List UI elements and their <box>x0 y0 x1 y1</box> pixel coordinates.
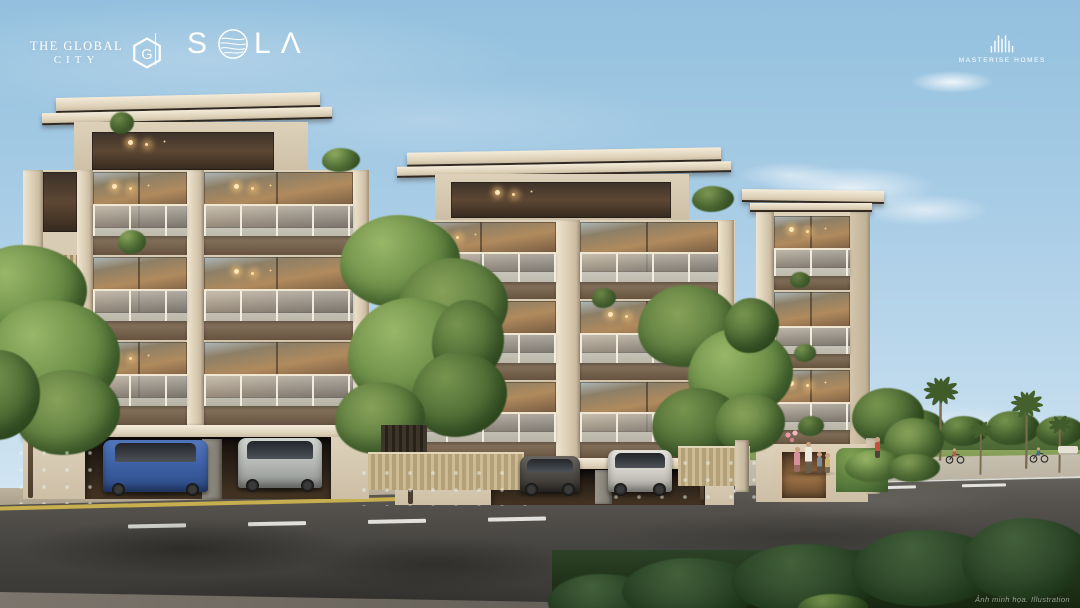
roof-slab <box>742 189 884 204</box>
balcony-glass-rail <box>580 252 718 282</box>
sola-logo: S L Λ <box>187 27 306 61</box>
park-bench <box>1058 446 1078 453</box>
header-branding: THE GLOBAL CITY G S L Λ <box>0 0 1080 95</box>
sola-letter-l: L <box>254 27 276 61</box>
logo-divider <box>155 33 156 65</box>
side-window <box>43 172 77 232</box>
pedestrian-child <box>817 457 822 473</box>
balcony-glass-rail <box>93 204 187 236</box>
cyclist <box>944 448 966 464</box>
hedge-row <box>358 468 530 506</box>
car-windshield <box>247 441 313 459</box>
illustration-watermark: Ảnh minh họa. Illustration <box>975 595 1070 604</box>
pedestrian-child <box>825 458 830 473</box>
car-windshield <box>115 443 197 462</box>
spandrel-band <box>774 276 850 290</box>
balloons <box>784 430 800 446</box>
tree-shadow-on-road <box>20 518 350 578</box>
global-city-line2: CITY <box>30 54 123 66</box>
global-city-emblem-icon: G <box>130 36 164 70</box>
sola-wave-o-icon <box>217 28 249 60</box>
global-city-wordmark: THE GLOBAL CITY <box>30 40 123 66</box>
attic-window <box>92 132 274 170</box>
facade-column <box>556 220 580 460</box>
cyclist <box>1028 447 1050 463</box>
spandrel-band <box>204 236 353 255</box>
car-windshield <box>527 459 574 472</box>
blue-suv-car <box>103 440 208 492</box>
facade-column <box>187 170 204 425</box>
emblem-letter: G <box>142 47 153 63</box>
masterise-homes-logo: MASTERISE HOMES <box>959 32 1046 64</box>
render-canvas: THE GLOBAL CITY G S L Λ <box>0 0 1080 608</box>
hedge-row <box>0 448 107 504</box>
balcony-glass-rail <box>204 289 353 321</box>
dark-coupe-car <box>520 456 580 492</box>
sola-letter-s: S <box>187 27 212 61</box>
balcony-glass-rail <box>204 374 353 406</box>
global-city-line1: THE GLOBAL <box>30 40 123 54</box>
jogger <box>875 442 880 458</box>
attic-window <box>451 182 671 218</box>
masterise-homes-label: MASTERISE HOMES <box>959 57 1046 64</box>
spandrel-band <box>204 321 353 340</box>
palm-tree <box>962 420 1000 476</box>
balcony-glass-rail <box>204 204 353 236</box>
masterise-homes-icon <box>987 32 1017 54</box>
spandrel-band <box>204 406 353 425</box>
sola-letter-a: Λ <box>281 27 306 61</box>
car-windshield <box>615 453 665 468</box>
pedestrian-woman <box>794 452 800 472</box>
global-city-logo: THE GLOBAL CITY G <box>30 36 164 70</box>
pedestrian-man <box>805 447 812 473</box>
balcony-glass-rail <box>774 248 850 276</box>
silver-suv-car <box>238 438 322 488</box>
palm-tree <box>1040 414 1080 474</box>
white-suv-car <box>608 450 672 492</box>
roof-slab-lower <box>750 203 872 212</box>
balcony-glass-rail <box>93 289 187 321</box>
